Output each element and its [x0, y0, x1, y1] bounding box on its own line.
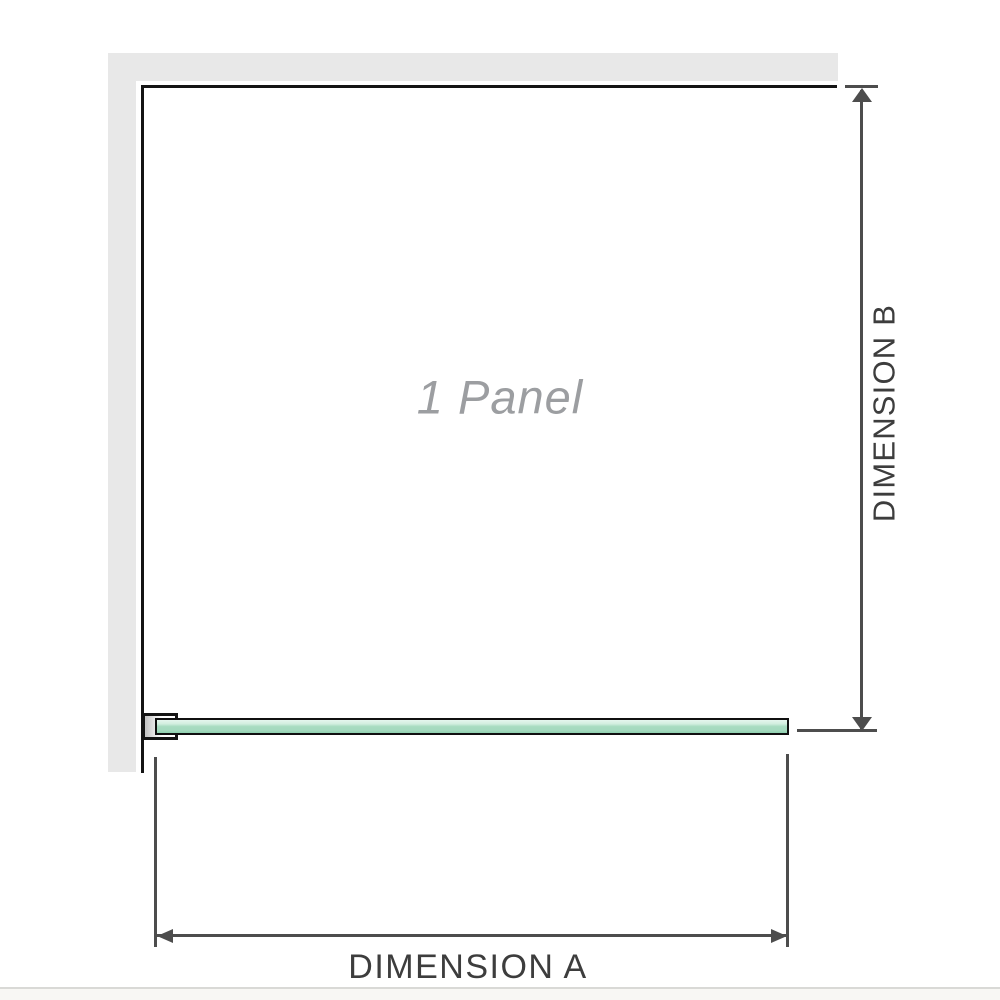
glass-panel	[155, 718, 789, 735]
dimension-a-label: DIMENSION A	[348, 950, 587, 984]
wall-top	[108, 53, 838, 81]
wall-left	[108, 53, 136, 772]
dim-b-arrow-down-icon	[852, 717, 872, 731]
dimension-a-extension-right	[786, 754, 789, 947]
dimension-b-line	[860, 90, 863, 731]
dimension-a-extension-left	[154, 757, 157, 947]
dim-b-arrow-up-icon	[852, 88, 872, 102]
dimension-b-label: DIMENSION B	[869, 304, 900, 522]
panel-label: 1 Panel	[417, 370, 583, 425]
bottom-strip	[0, 989, 1000, 1000]
dim-a-arrow-left-icon	[157, 929, 173, 943]
panel-outline	[141, 85, 837, 773]
dimension-a-line	[157, 934, 788, 937]
diagram-canvas: 1 Panel DIMENSION B DIMENSION A	[0, 0, 1000, 1000]
dim-a-arrow-right-icon	[771, 929, 787, 943]
bottom-divider-line	[0, 987, 1000, 989]
